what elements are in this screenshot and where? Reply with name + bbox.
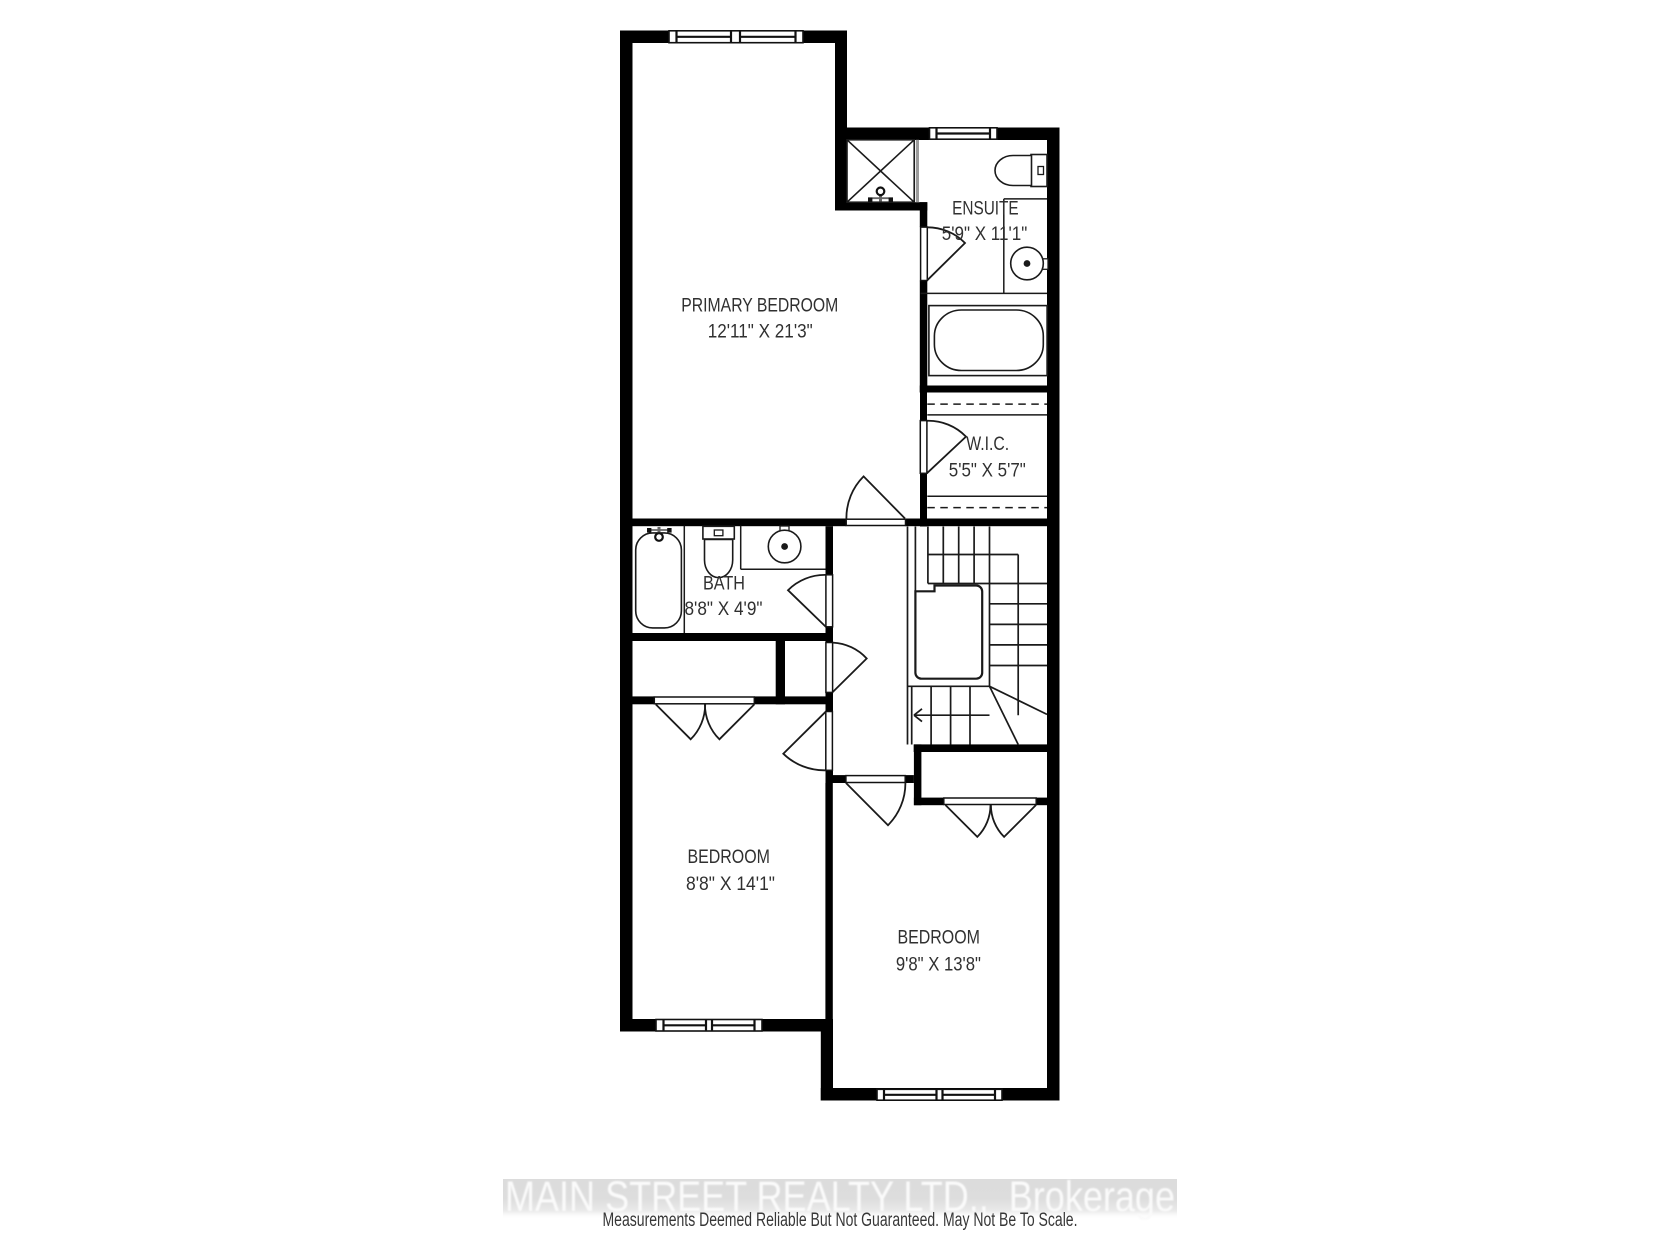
svg-text:PRIMARY BEDROOM: PRIMARY BEDROOM xyxy=(681,295,838,317)
svg-text:BEDROOM: BEDROOM xyxy=(897,927,980,949)
svg-text:BATH: BATH xyxy=(703,573,745,595)
svg-text:ENSUITE: ENSUITE xyxy=(952,197,1019,219)
svg-text:5'9" X 11'1": 5'9" X 11'1" xyxy=(942,223,1028,245)
svg-text:12'11" X 21'3": 12'11" X 21'3" xyxy=(708,321,813,343)
svg-text:5'5" X 5'7": 5'5" X 5'7" xyxy=(949,459,1026,481)
svg-text:8'8" X 14'1": 8'8" X 14'1" xyxy=(686,873,775,895)
svg-text:BEDROOM: BEDROOM xyxy=(687,846,770,868)
svg-text:8'8" X 4'9": 8'8" X 4'9" xyxy=(685,598,763,620)
svg-text:W.I.C.: W.I.C. xyxy=(966,433,1009,455)
svg-text:Measurements Deemed Reliable B: Measurements Deemed Reliable But Not Gua… xyxy=(603,1210,1078,1231)
svg-text:9'8" X 13'8": 9'8" X 13'8" xyxy=(896,953,981,975)
